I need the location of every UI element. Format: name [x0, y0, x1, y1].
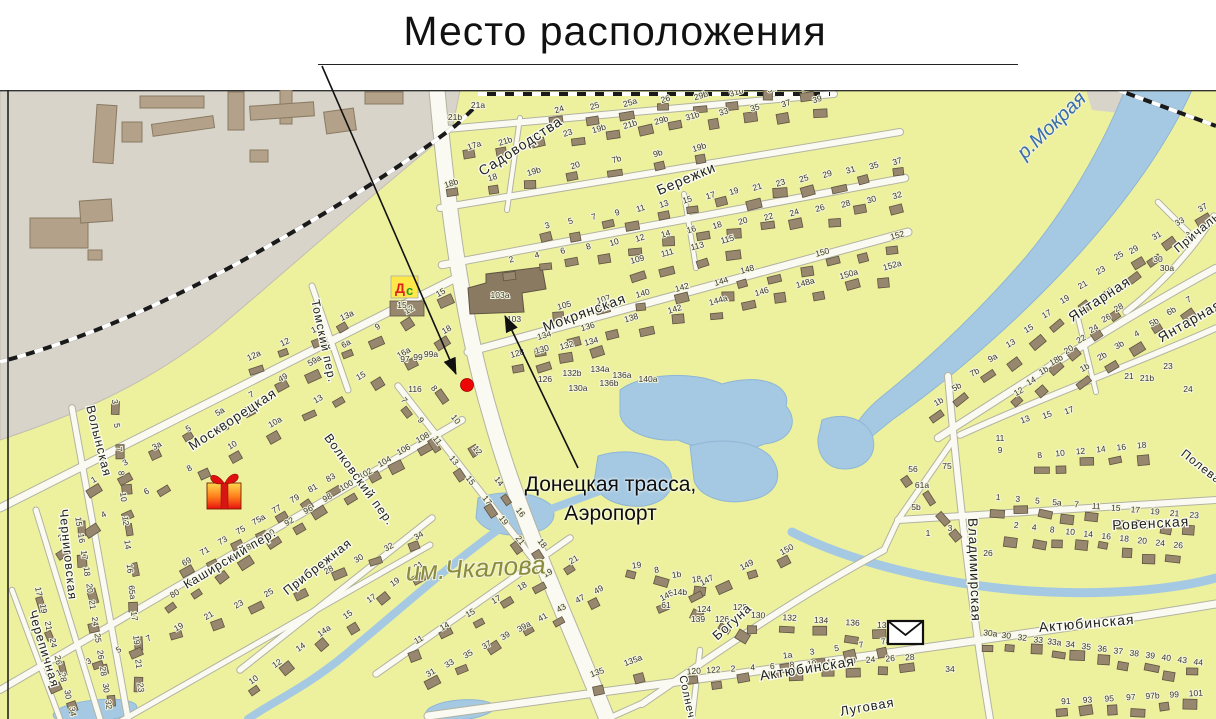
location-marker-dot	[461, 379, 474, 392]
svg-text:33: 33	[1033, 634, 1044, 645]
svg-text:30a: 30a	[983, 627, 998, 638]
svg-text:136a: 136a	[613, 370, 632, 380]
svg-text:17: 17	[33, 586, 45, 597]
svg-text:39: 39	[1145, 650, 1156, 661]
svg-text:30: 30	[62, 689, 74, 700]
svg-text:36: 36	[1097, 643, 1108, 654]
title-underline	[318, 64, 1018, 65]
svg-text:26: 26	[983, 548, 993, 558]
svg-text:99a: 99a	[424, 349, 438, 359]
svg-text:11: 11	[996, 433, 1005, 443]
annotation-line1: Донецкая трасса,	[468, 470, 753, 499]
svg-text:20: 20	[1137, 535, 1148, 546]
svg-text:16: 16	[1101, 531, 1112, 542]
svg-text:56: 56	[908, 464, 918, 474]
post-office-icon	[888, 621, 923, 644]
svg-text:14: 14	[1096, 444, 1107, 455]
svg-text:Д: Д	[395, 280, 405, 296]
svg-text:32: 32	[103, 699, 114, 710]
svg-text:17: 17	[79, 550, 90, 561]
svg-text:30a: 30a	[1160, 263, 1174, 273]
svg-text:40: 40	[1161, 652, 1172, 663]
svg-text:19: 19	[631, 559, 642, 570]
svg-text:23: 23	[1189, 510, 1199, 521]
svg-text:14: 14	[1083, 529, 1094, 540]
svg-text:18: 18	[1136, 440, 1147, 451]
svg-text:11: 11	[1091, 501, 1101, 512]
svg-text:99: 99	[1169, 689, 1179, 699]
svg-text:5: 5	[1035, 495, 1041, 505]
svg-text:126: 126	[538, 374, 552, 384]
svg-text:61a: 61a	[915, 480, 929, 490]
svg-text:134: 134	[814, 615, 829, 626]
svg-text:21b: 21b	[1140, 373, 1154, 383]
svg-text:3: 3	[948, 523, 953, 533]
svg-text:33a: 33a	[1047, 636, 1062, 647]
svg-text:30: 30	[101, 683, 112, 694]
svg-text:15: 15	[1111, 502, 1121, 513]
svg-text:34: 34	[1065, 639, 1076, 650]
svg-text:44: 44	[1193, 657, 1204, 668]
svg-text:95: 95	[1104, 693, 1114, 703]
svg-text:134a: 134a	[591, 364, 610, 374]
svg-text:139: 139	[691, 614, 705, 624]
svg-text:17: 17	[1130, 504, 1140, 515]
svg-text:122: 122	[706, 664, 721, 675]
svg-text:24: 24	[1183, 384, 1193, 394]
svg-text:24: 24	[90, 616, 101, 627]
svg-text:132b: 132b	[563, 368, 582, 378]
svg-text:103: 103	[507, 314, 521, 324]
svg-text:97b: 97b	[1145, 690, 1160, 701]
svg-text:10: 10	[118, 492, 129, 503]
svg-text:с: с	[406, 283, 413, 298]
svg-text:4: 4	[750, 662, 756, 672]
svg-text:20: 20	[84, 583, 95, 594]
map-svg: 242525a2629b31b3439b17a21b222319b21b29b3…	[0, 90, 1216, 719]
svg-text:16: 16	[125, 563, 136, 574]
svg-text:24: 24	[865, 654, 875, 665]
svg-text:97: 97	[1126, 692, 1136, 702]
svg-text:124: 124	[697, 604, 711, 614]
page-title: Место расположения	[315, 8, 915, 55]
svg-text:21: 21	[87, 600, 98, 611]
svg-text:75: 75	[942, 461, 952, 471]
svg-text:38: 38	[1129, 648, 1140, 659]
svg-text:37: 37	[1113, 645, 1124, 656]
page: Место расположения 242525a2629b31b3439b1…	[0, 0, 1216, 719]
svg-text:34: 34	[945, 664, 955, 674]
svg-text:24: 24	[1155, 537, 1166, 548]
svg-text:21: 21	[133, 658, 144, 669]
svg-text:130a: 130a	[569, 383, 588, 393]
svg-text:43: 43	[1177, 654, 1188, 665]
svg-text:23: 23	[1163, 361, 1173, 371]
svg-text:18: 18	[1119, 533, 1130, 544]
svg-text:93: 93	[1083, 694, 1093, 704]
svg-text:16: 16	[76, 533, 87, 544]
annotation-line2: Аэропорт	[468, 499, 753, 528]
svg-text:32: 32	[1017, 632, 1028, 643]
svg-text:5b: 5b	[911, 502, 921, 512]
svg-text:21a: 21a	[471, 100, 485, 110]
svg-text:136: 136	[845, 617, 860, 628]
svg-text:1b: 1b	[671, 569, 682, 580]
svg-text:14b: 14b	[673, 587, 687, 597]
svg-text:26: 26	[1173, 540, 1184, 551]
svg-text:17: 17	[129, 611, 140, 622]
svg-text:21b: 21b	[448, 112, 462, 122]
svg-text:35: 35	[1081, 641, 1092, 652]
svg-text:132: 132	[782, 612, 797, 623]
svg-text:26: 26	[885, 653, 895, 664]
svg-text:18: 18	[82, 566, 93, 577]
svg-text:1: 1	[926, 528, 931, 538]
kindergarten-icon: Дс	[391, 276, 418, 298]
svg-text:28: 28	[98, 666, 109, 677]
svg-text:1: 1	[995, 492, 1001, 502]
svg-text:23: 23	[135, 682, 146, 693]
svg-text:19: 19	[131, 635, 142, 646]
svg-text:7: 7	[1074, 499, 1080, 509]
svg-text:99: 99	[413, 352, 423, 362]
svg-text:101: 101	[1188, 688, 1203, 699]
svg-text:25: 25	[93, 633, 104, 644]
svg-text:12: 12	[1075, 446, 1086, 457]
svg-text:9: 9	[998, 445, 1003, 455]
svg-text:12: 12	[120, 515, 131, 526]
svg-text:28: 28	[905, 652, 915, 663]
svg-text:15: 15	[397, 300, 407, 310]
svg-text:34: 34	[67, 706, 79, 717]
svg-text:30: 30	[1001, 630, 1012, 641]
map-canvas: 242525a2629b31b3439b17a21b222319b21b29b3…	[0, 90, 1216, 719]
svg-text:14: 14	[122, 539, 133, 550]
svg-text:5a: 5a	[1052, 497, 1062, 508]
svg-text:10: 10	[1065, 526, 1076, 537]
svg-text:140a: 140a	[639, 374, 658, 384]
svg-text:65a: 65a	[126, 585, 138, 601]
svg-text:16: 16	[1116, 442, 1127, 453]
svg-text:91: 91	[1061, 696, 1071, 706]
svg-text:26: 26	[95, 649, 106, 660]
svg-text:103a: 103a	[491, 290, 510, 300]
svg-text:21: 21	[1124, 371, 1134, 381]
svg-text:116: 116	[408, 384, 422, 394]
svg-text:15: 15	[73, 516, 84, 527]
svg-text:97: 97	[400, 354, 410, 364]
svg-text:61: 61	[661, 600, 671, 610]
svg-text:10: 10	[1055, 448, 1066, 459]
map-annotation: Донецкая трасса, Аэропорт	[468, 470, 753, 528]
